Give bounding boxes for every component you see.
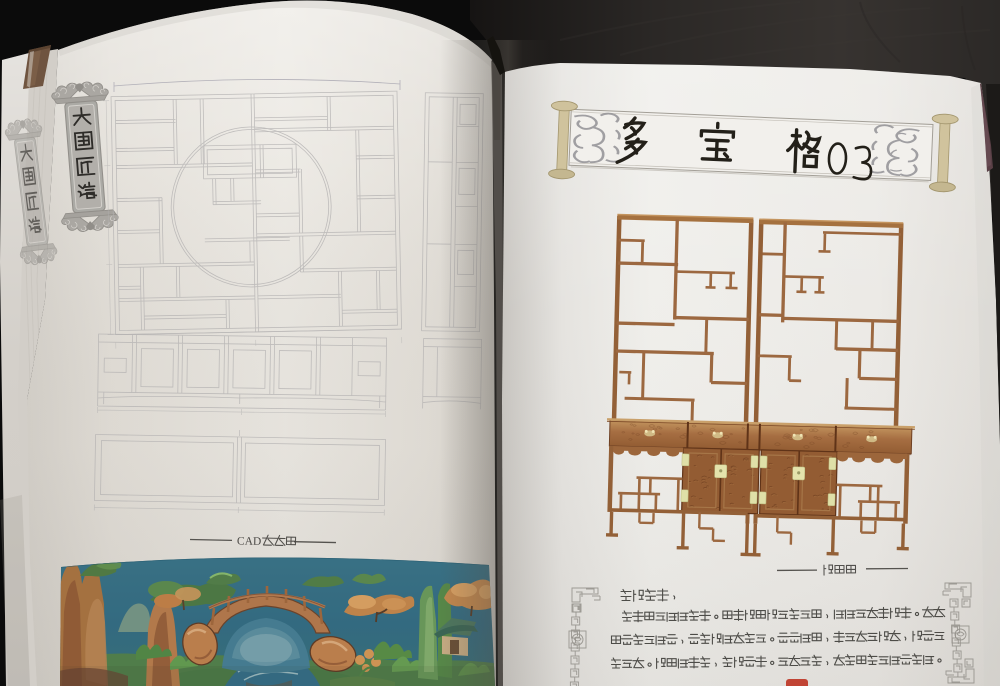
svg-text:CAD: CAD [237,535,262,548]
